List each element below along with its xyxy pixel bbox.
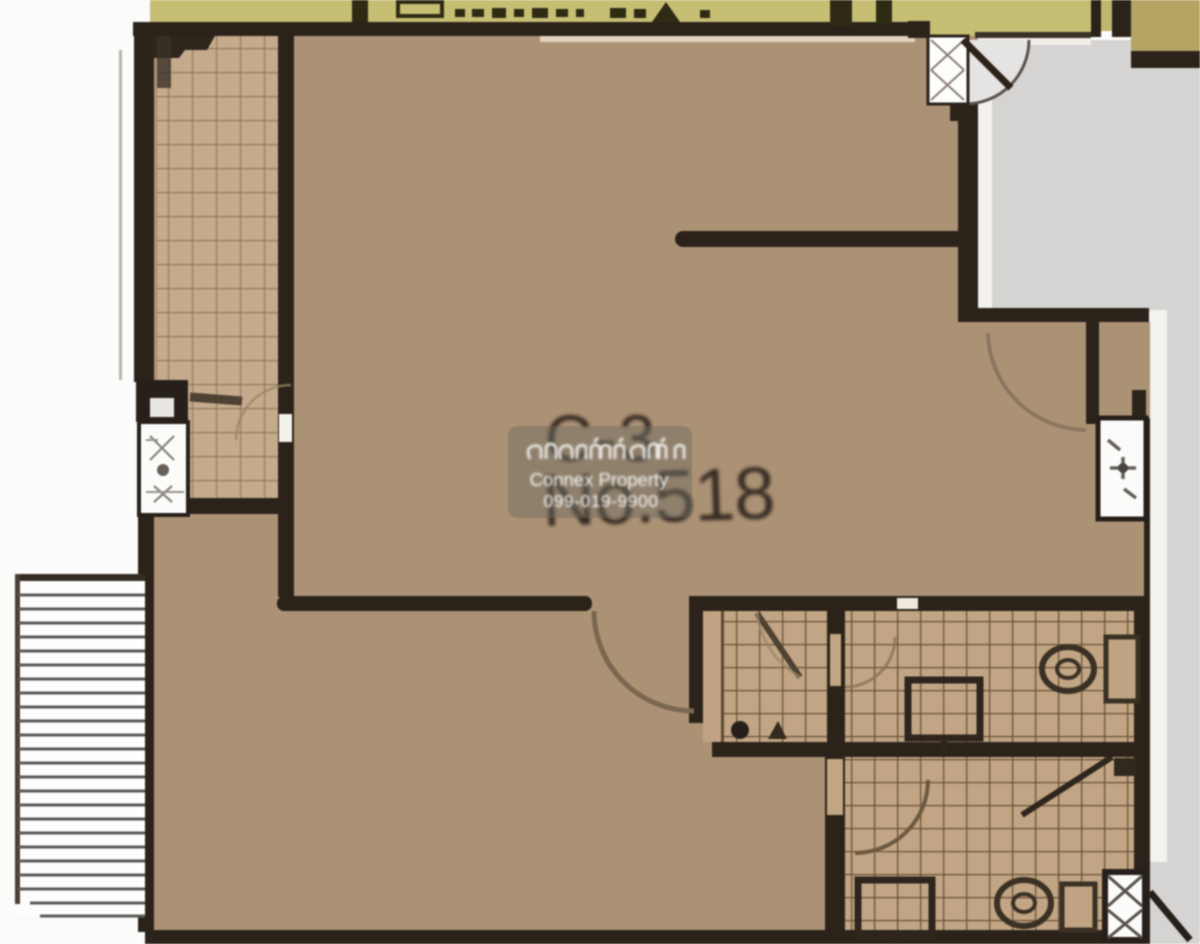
svg-text:Connex Property: Connex Property [530, 469, 670, 490]
svg-text:099-019-9900: 099-019-9900 [544, 491, 659, 511]
